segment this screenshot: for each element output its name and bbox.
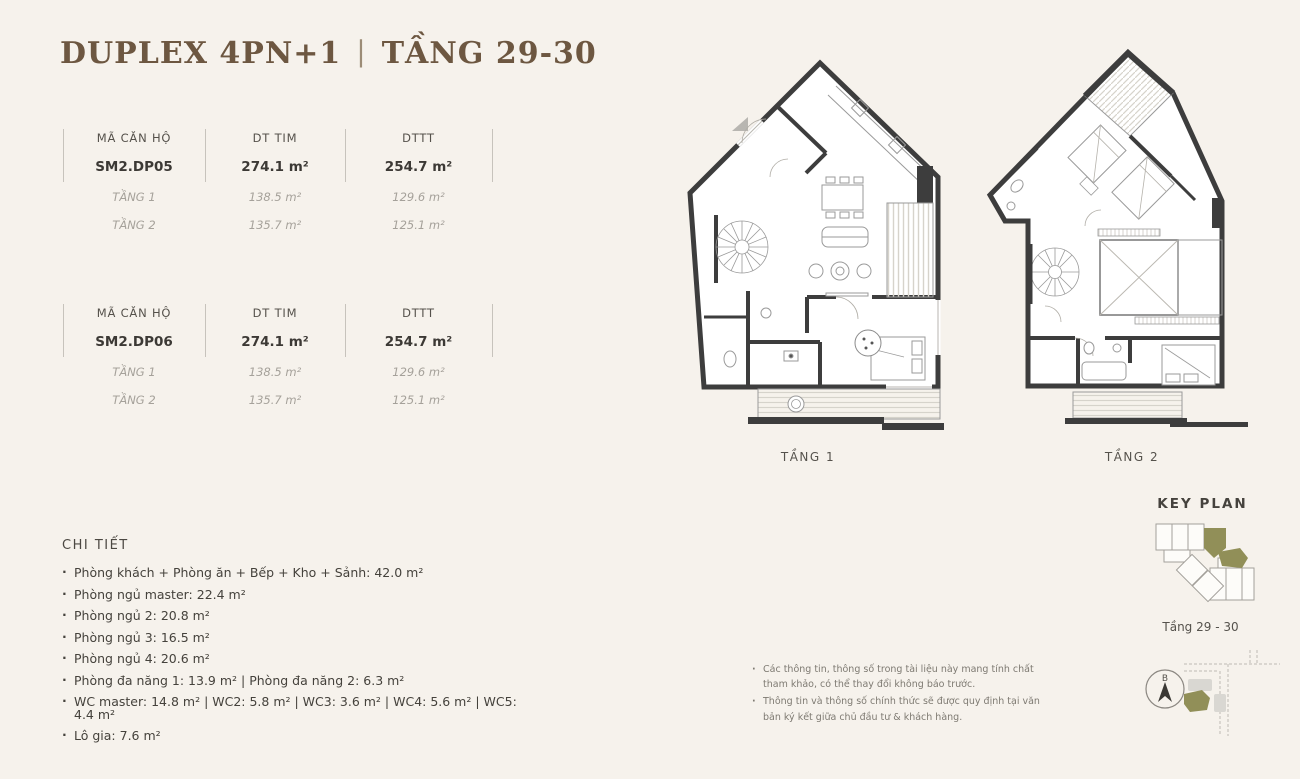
floor-label: TẦNG 1: [63, 190, 205, 204]
disclaimer: Các thông tin, thông số trong tài liệu n…: [752, 662, 1054, 727]
table-header-row: MÃ CĂN HỘ DT TIM DTTT: [63, 301, 493, 325]
floor-dttt: 129.6 m²: [345, 365, 492, 379]
room-floor-hatch: [887, 203, 933, 297]
page-title-name: DUPLEX 4PN+1: [60, 36, 341, 71]
keyplan-diagram: [1152, 514, 1262, 614]
floor-dttt: 129.6 m²: [345, 190, 492, 204]
table-separator: [205, 129, 206, 182]
list-item: Phòng ngủ 4: 20.6 m²: [62, 653, 522, 666]
entry-arrow-icon: [732, 117, 748, 131]
building-neighbor: [1214, 694, 1226, 712]
building-neighbor: [1188, 679, 1212, 691]
col-header-unit-code: MÃ CĂN HỘ: [63, 306, 205, 320]
table-header-row: MÃ CĂN HỘ DT TIM DTTT: [63, 126, 493, 150]
brochure-page: DUPLEX 4PN+1 | TẦNG 29-30 MÃ CĂN HỘ DT T…: [0, 0, 1300, 779]
highlighted-units: [1204, 528, 1248, 568]
floor-dt-tim: 138.5 m²: [205, 190, 345, 204]
north-arrow: [1158, 682, 1172, 702]
unit-table-dp05: MÃ CĂN HỘ DT TIM DTTT SM2.DP05 274.1 m² …: [63, 126, 493, 239]
page-title: DUPLEX 4PN+1 | TẦNG 29-30: [60, 36, 597, 71]
unit-dttt: 254.7 m²: [345, 159, 492, 175]
keyplan-caption: Tầng 29 - 30: [1138, 620, 1263, 634]
bed: [1162, 345, 1215, 385]
details-section: CHI TIẾT Phòng khách + Phòng ăn + Bếp + …: [62, 538, 522, 752]
col-header-dt-tim: DT TIM: [205, 306, 345, 320]
list-item: Phòng đa năng 1: 13.9 m² | Phòng đa năng…: [62, 675, 522, 688]
table-row: SM2.DP06 274.1 m² 254.7 m²: [63, 325, 493, 358]
table-row: TẦNG 2 135.7 m² 125.1 m²: [63, 386, 493, 414]
railing: [1135, 317, 1219, 324]
floor-dt-tim: 138.5 m²: [205, 365, 345, 379]
unit-code: SM2.DP05: [63, 159, 205, 175]
list-item: Phòng ngủ 2: 20.8 m²: [62, 610, 522, 623]
floorplan-tang1-drawing: [686, 55, 996, 430]
col-header-unit-code: MÃ CĂN HỘ: [63, 131, 205, 145]
wall-block: [917, 166, 933, 203]
list-item: Lô gia: 7.6 m²: [62, 730, 522, 743]
keyplan-title: KEY PLAN: [1140, 496, 1265, 512]
railing: [1098, 229, 1160, 236]
col-header-dttt: DTTT: [345, 131, 492, 145]
list-item: WC master: 14.8 m² | WC2: 5.8 m² | WC3: …: [62, 696, 522, 721]
round-ottoman: [855, 330, 881, 356]
location-map: [1180, 646, 1295, 738]
list-item: Phòng ngủ 3: 16.5 m²: [62, 632, 522, 645]
col-header-dttt: DTTT: [345, 306, 492, 320]
table-separator: [205, 304, 206, 357]
unit-dt-tim: 274.1 m²: [205, 334, 345, 350]
table-row: SM2.DP05 274.1 m² 254.7 m²: [63, 150, 493, 183]
col-header-dt-tim: DT TIM: [205, 131, 345, 145]
floorplan-label-tang1: TẦNG 1: [748, 450, 868, 464]
list-item: Phòng khách + Phòng ăn + Bếp + Kho + Sản…: [62, 567, 522, 580]
wall-block: [1212, 198, 1222, 228]
floor-dt-tim: 135.7 m²: [205, 218, 345, 232]
void-space: [1100, 240, 1178, 315]
list-item: Phòng ngủ master: 22.4 m²: [62, 589, 522, 602]
table-row: TẦNG 1 138.5 m² 129.6 m²: [63, 358, 493, 386]
floor-label: TẦNG 2: [63, 393, 205, 407]
table-separator: [63, 129, 64, 182]
floorplan-tang2-drawing: [985, 48, 1250, 428]
project-building: [1184, 690, 1210, 712]
floor-dt-tim: 135.7 m²: [205, 393, 345, 407]
table-separator: [492, 304, 493, 357]
balcony: [748, 389, 944, 430]
floor-label: TẦNG 1: [63, 365, 205, 379]
page-title-floors: TẦNG 29-30: [382, 36, 597, 71]
table-row: TẦNG 1 138.5 m² 129.6 m²: [63, 183, 493, 211]
table-separator: [63, 304, 64, 357]
unit-dt-tim: 274.1 m²: [205, 159, 345, 175]
floorplan-label-tang2: TẦNG 2: [1072, 450, 1192, 464]
table-separator: [345, 304, 346, 357]
dining-table: [822, 177, 863, 218]
table-separator: [345, 129, 346, 182]
spiral-staircase: [716, 221, 768, 273]
floor-dttt: 125.1 m²: [345, 393, 492, 407]
balcony: [1065, 392, 1248, 427]
disclaimer-item: Thông tin và thông số chính thức sẽ được…: [752, 694, 1054, 724]
unit-table-dp06: MÃ CĂN HỘ DT TIM DTTT SM2.DP06 274.1 m² …: [63, 301, 493, 414]
details-heading: CHI TIẾT: [62, 538, 522, 553]
unit-code: SM2.DP06: [63, 334, 205, 350]
unit-dttt: 254.7 m²: [345, 334, 492, 350]
disclaimer-item: Các thông tin, thông số trong tài liệu n…: [752, 662, 1054, 692]
table-separator: [492, 129, 493, 182]
floor-label: TẦNG 2: [63, 218, 205, 232]
floor-dttt: 125.1 m²: [345, 218, 492, 232]
table-row: TẦNG 2 135.7 m² 125.1 m²: [63, 211, 493, 239]
title-divider: |: [356, 35, 366, 68]
